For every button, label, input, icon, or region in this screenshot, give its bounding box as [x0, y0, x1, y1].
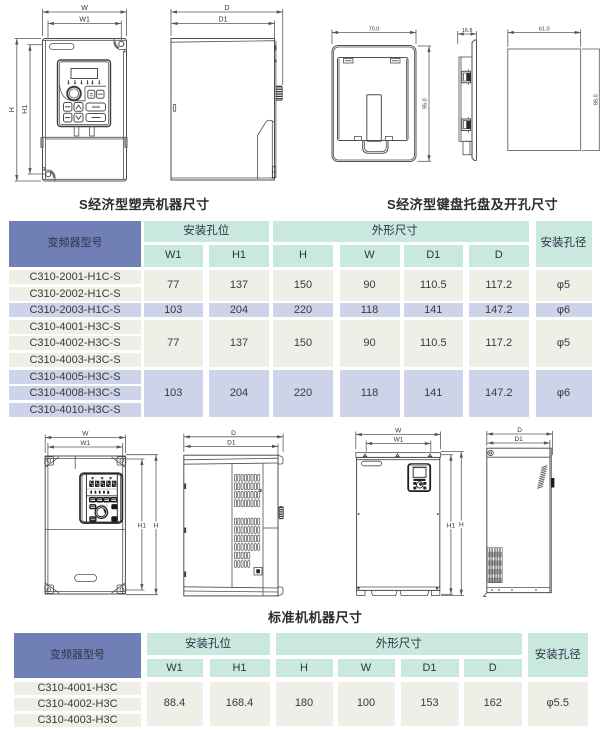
svg-text:W1: W1 — [80, 440, 90, 447]
svg-text:W: W — [395, 428, 402, 435]
svg-text:D: D — [231, 430, 236, 437]
svg-text:61.0: 61.0 — [539, 27, 550, 33]
svg-text:D1: D1 — [227, 439, 236, 446]
svg-text:70.0: 70.0 — [369, 27, 380, 33]
svg-text:H: H — [154, 523, 159, 530]
svg-text:W1: W1 — [79, 17, 90, 24]
svg-text:D1: D1 — [514, 436, 523, 443]
svg-text:W: W — [81, 5, 88, 12]
svg-text:W1: W1 — [394, 437, 404, 444]
svg-text:D: D — [224, 5, 229, 12]
svg-text:W: W — [82, 431, 89, 438]
svg-text:H: H — [9, 107, 16, 112]
svg-text:16.8: 16.8 — [462, 28, 473, 34]
svg-text:H1: H1 — [22, 105, 29, 114]
svg-text:86.0: 86.0 — [593, 94, 599, 105]
svg-text:H1: H1 — [138, 523, 147, 530]
svg-text:H: H — [459, 522, 464, 529]
svg-text:D: D — [517, 427, 522, 434]
svg-text:H1: H1 — [447, 523, 456, 530]
svg-text:95.0: 95.0 — [423, 98, 429, 109]
svg-text:D1: D1 — [219, 17, 228, 24]
